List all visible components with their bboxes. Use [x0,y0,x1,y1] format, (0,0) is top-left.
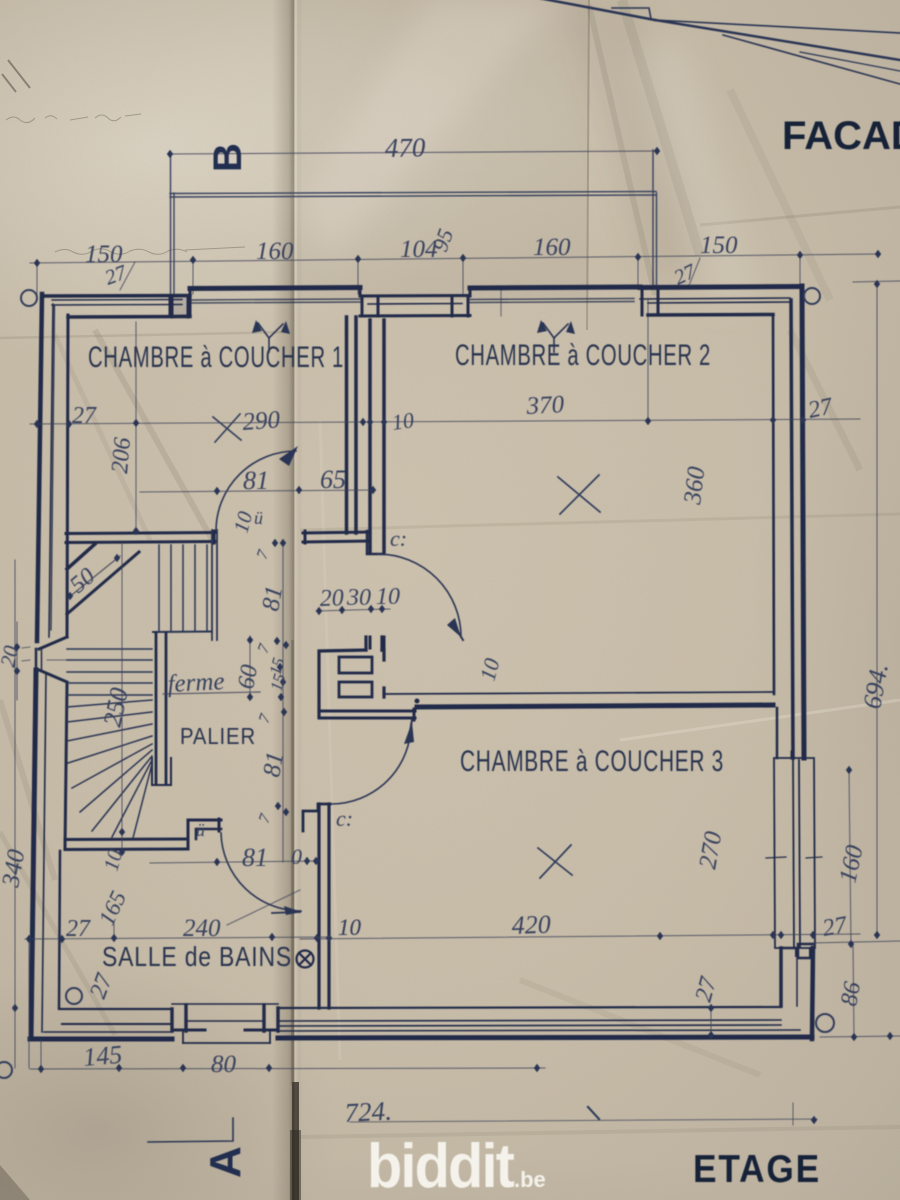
svg-text:160: 160 [256,238,294,265]
svg-text:CHAMBRE à COUCHER 3: CHAMBRE à COUCHER 3 [460,745,724,778]
svg-text:ü: ü [254,508,263,528]
svg-text:420: 420 [511,910,551,940]
svg-text:10: 10 [390,407,415,435]
svg-text:81: 81 [257,584,288,613]
svg-text:290: 290 [242,406,282,436]
svg-text:60: 60 [233,663,263,691]
svg-text:80: 80 [211,1051,237,1078]
svg-text:81: 81 [243,466,269,495]
svg-text:10: 10 [376,584,400,610]
svg-text:27: 27 [72,403,97,429]
svg-text:150: 150 [700,232,738,259]
svg-text:724.: 724. [344,1096,393,1128]
svg-text:10: 10 [338,915,362,940]
svg-text:CHAMBRE à COUCHER 2: CHAMBRE à COUCHER 2 [455,339,711,372]
svg-text:biddit: biddit [367,1132,514,1200]
svg-text:20: 20 [319,585,344,612]
svg-text:160: 160 [533,234,571,261]
svg-text:65: 65 [320,465,346,494]
svg-text:ü: ü [196,820,205,840]
svg-text:240: 240 [183,915,221,942]
svg-text:A: A [201,1146,250,1178]
svg-text:FACADE: FACADE [782,114,900,158]
svg-text:81: 81 [242,843,268,872]
svg-text:370: 370 [525,391,565,420]
svg-text:470: 470 [385,132,427,163]
svg-text:B: B [206,143,250,172]
svg-text:PALIER: PALIER [180,723,256,749]
svg-text:.be: .be [514,1167,546,1192]
svg-text:360: 360 [679,465,711,507]
svg-text:27: 27 [66,916,91,942]
svg-text:145: 145 [82,1040,123,1072]
svg-text:0: 0 [291,844,302,869]
svg-text:CHAMBRE à COUCHER 1: CHAMBRE à COUCHER 1 [88,341,344,374]
svg-text:86: 86 [836,980,866,1008]
svg-text:c:: c: [390,526,407,551]
svg-text:ETAGE: ETAGE [693,1148,821,1191]
svg-text:30: 30 [346,585,371,611]
svg-text:c:: c: [336,806,353,831]
svg-text:SALLE de BAINS: SALLE de BAINS [102,941,292,972]
svg-text:81: 81 [258,750,289,779]
svg-text:206: 206 [107,436,136,474]
